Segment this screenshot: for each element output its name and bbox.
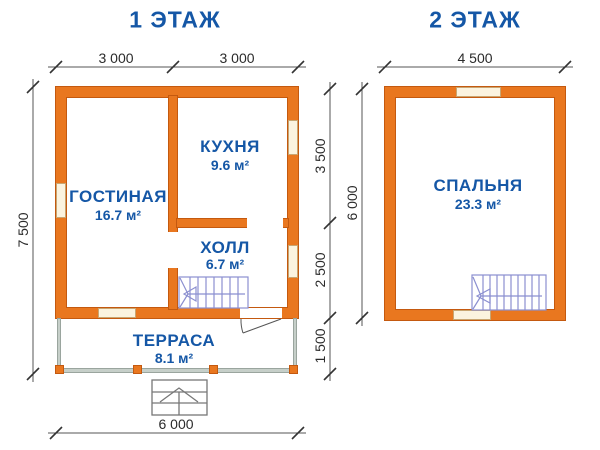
dimension-lines — [33, 67, 573, 433]
room-label-hall: ХОЛЛ — [200, 238, 250, 258]
dim-floor1-top-left: 3 000 — [98, 50, 133, 66]
floor2-title: 2 ЭТАЖ — [429, 7, 521, 34]
room-area-hall: 6.7 м² — [206, 256, 244, 272]
room-area-living: 16.7 м² — [95, 207, 141, 223]
room-label-kitchen: КУХНЯ — [200, 137, 260, 157]
porch-steps-icon — [152, 380, 207, 415]
room-label-bedroom: СПАЛЬНЯ — [433, 176, 522, 196]
dim-floor1-top-right: 3 000 — [219, 50, 254, 66]
room-area-kitchen: 9.6 м² — [211, 157, 249, 173]
room-label-living: ГОСТИНАЯ — [69, 187, 167, 207]
floor1-title: 1 ЭТАЖ — [129, 7, 221, 34]
dim-floor2-top: 4 500 — [457, 50, 492, 66]
floor1-stairs-icon — [179, 277, 248, 308]
dim-mid-terrace: 1 500 — [312, 328, 328, 363]
room-label-terrace: ТЕРРАСА — [133, 331, 215, 351]
dim-floor1-bottom: 6 000 — [158, 416, 193, 432]
dim-floor1-left: 7 500 — [15, 212, 31, 247]
room-area-terrace: 8.1 м² — [155, 350, 193, 366]
door-swing-icon — [241, 319, 281, 333]
floor2-stairs-icon — [472, 275, 546, 310]
linework-layer — [0, 0, 600, 450]
dim-floor2-left: 6 000 — [344, 185, 360, 220]
dim-mid-upper: 3 500 — [312, 138, 328, 173]
room-area-bedroom: 23.3 м² — [455, 196, 501, 212]
floorplan-canvas: 1 ЭТАЖ 2 ЭТАЖ ГОСТИНАЯ 16.7 м² КУХНЯ 9.6… — [0, 0, 600, 450]
dimension-ticks — [27, 61, 571, 439]
dim-mid-lower: 2 500 — [312, 252, 328, 287]
